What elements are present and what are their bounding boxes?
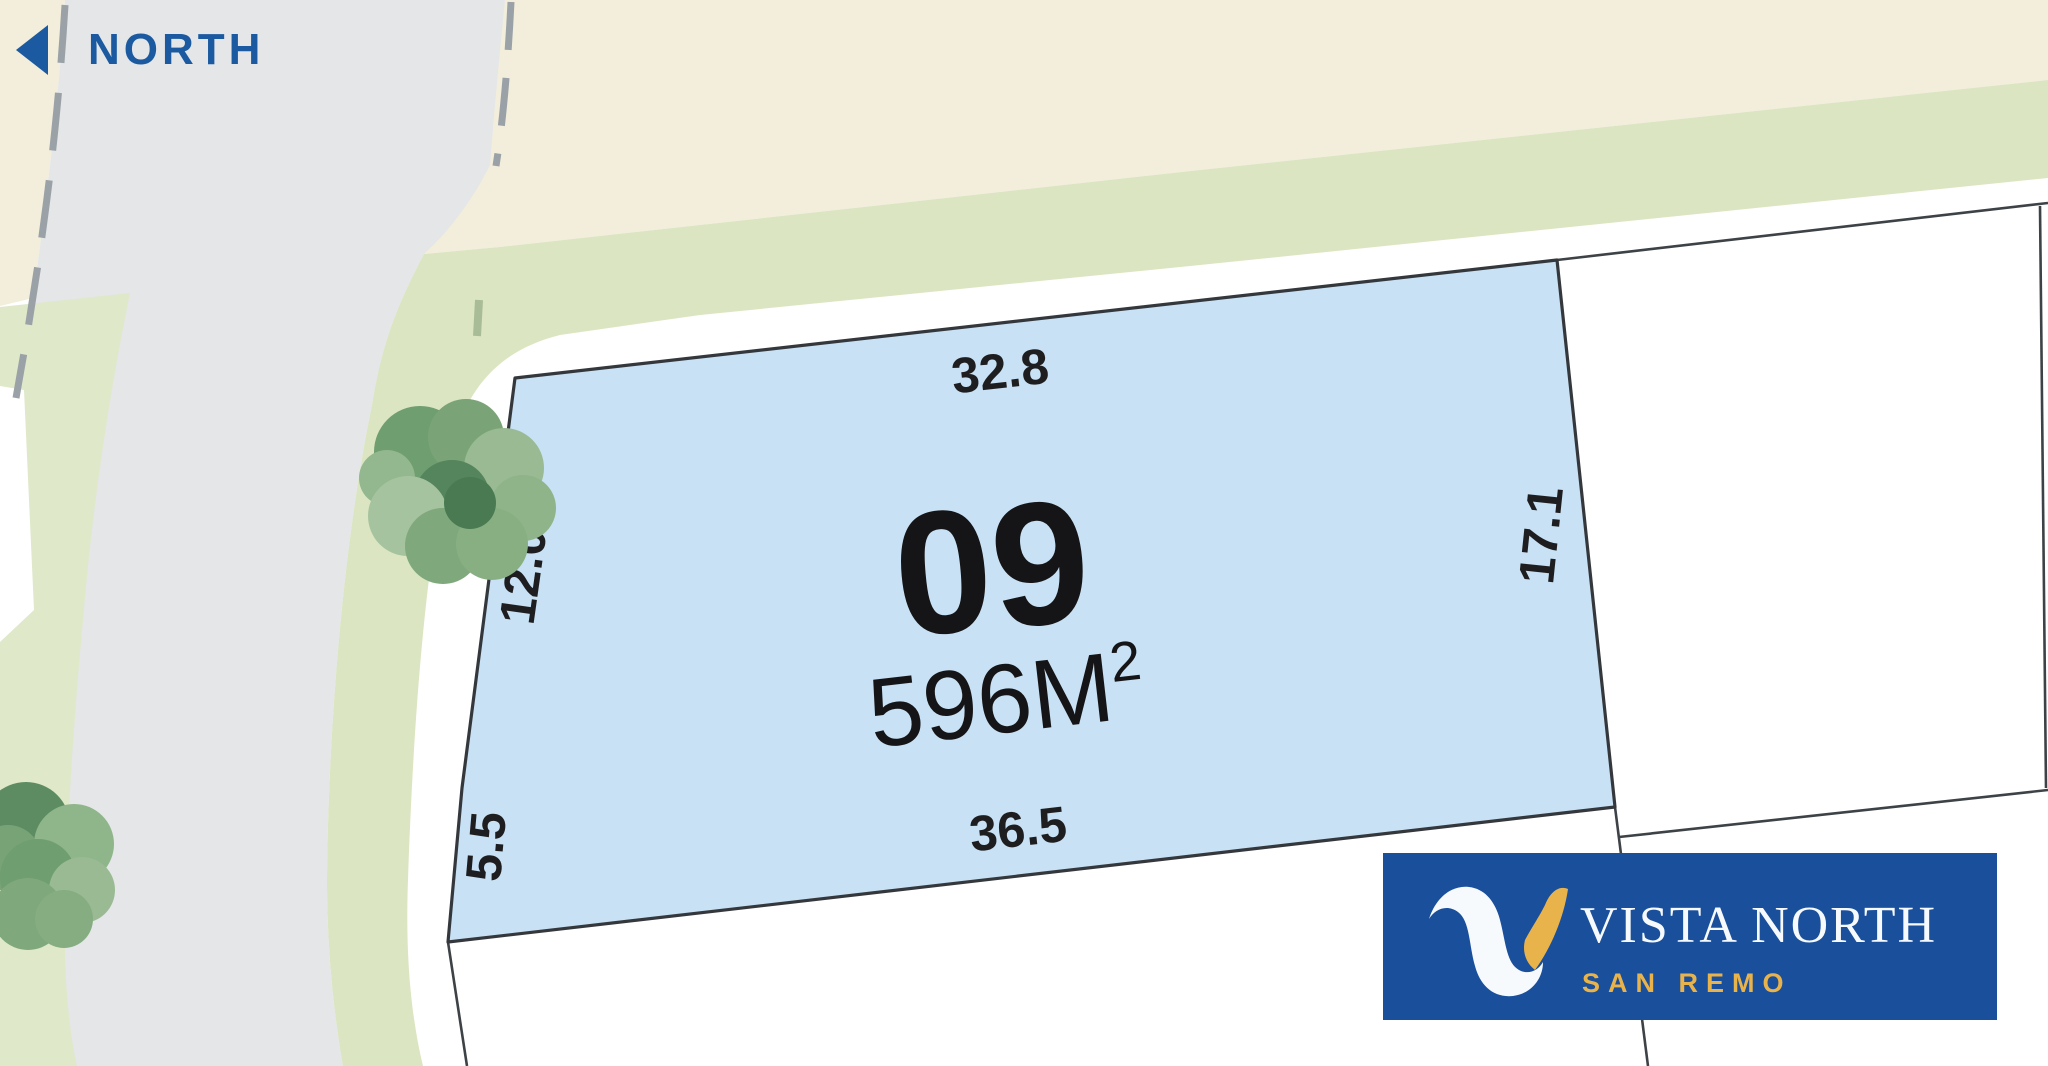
logo-vista-north: VISTA NORTH SAN REMO: [1383, 853, 1997, 1020]
dimension-bottom: 36.5: [967, 796, 1070, 863]
logo-title: VISTA NORTH: [1580, 897, 1937, 954]
dimension-left-lower: 5.5: [455, 809, 517, 883]
north-label: NORTH: [88, 25, 264, 74]
logo-subtitle: SAN REMO: [1582, 968, 1792, 998]
dimension-top: 32.8: [949, 338, 1052, 405]
masterplan-svg: 32.8 17.1 36.5 12.0 5.5 09 596M2 VISTA N…: [0, 0, 2048, 1066]
dimension-right: 17.1: [1508, 484, 1574, 587]
road-boundary-dash-green: [477, 300, 479, 336]
masterplan-canvas: 32.8 17.1 36.5 12.0 5.5 09 596M2 VISTA N…: [0, 0, 2048, 1066]
